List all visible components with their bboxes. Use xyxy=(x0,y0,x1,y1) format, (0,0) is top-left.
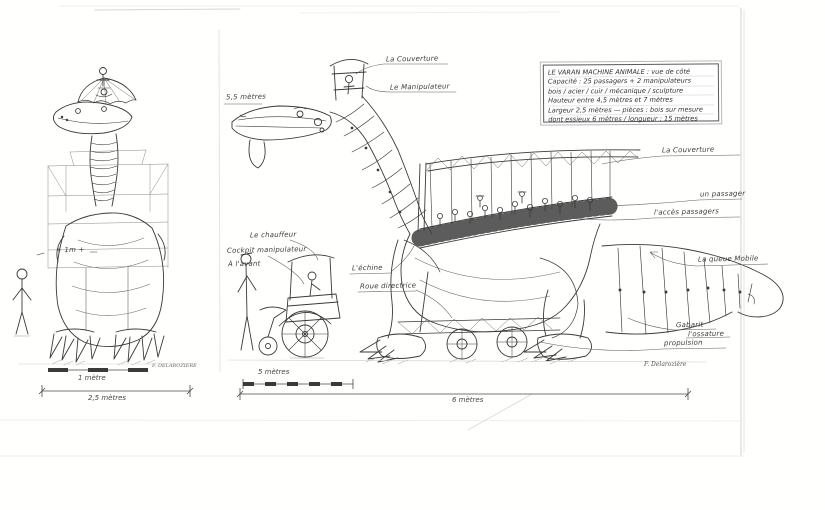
scanned-sketch-page: LE VARAN MACHINE ANIMALE : vue de côté C… xyxy=(0,0,825,510)
label-a-lavant: À l'avant xyxy=(228,260,261,269)
label-echine: L'échine xyxy=(352,264,383,273)
label-acces-passagers: l'accès passagers xyxy=(654,207,719,216)
label-echelle-humaine: + 1m + xyxy=(56,246,85,255)
label-queue-mobile: La queue Mobile xyxy=(698,254,759,263)
label-le-manipulateur: Le Manipulateur xyxy=(390,82,450,91)
label-ossature: l'ossature xyxy=(688,330,724,339)
title-block: LE VARAN MACHINE ANIMALE : vue de côté C… xyxy=(543,63,719,122)
gallery-sketch xyxy=(418,150,640,248)
dimension-front-scale: 1 mètre xyxy=(78,374,106,382)
label-un-passager: un passager xyxy=(700,190,745,199)
label-gabarit: Gabarit xyxy=(676,321,704,330)
label-cockpit-manipulateur: Cockpit manipulateur xyxy=(227,245,307,255)
legs-sketch xyxy=(360,240,592,364)
label-la-couverture-top: La Couverture xyxy=(386,54,438,63)
label-chauffeur: Le chauffeur xyxy=(250,231,297,240)
front-view-sketch xyxy=(18,68,196,366)
signature-front: F. DELAROZIERE xyxy=(152,363,197,369)
label-la-couverture-right: La Couverture xyxy=(662,145,714,154)
dimension-front-width: 2,5 mètres xyxy=(88,394,126,402)
dimension-side-length: 6 mètres xyxy=(452,396,483,404)
label-propulsion: propulsion xyxy=(664,339,703,348)
chassis-sketch xyxy=(398,317,560,363)
label-roue-directrice: Roue directrice xyxy=(360,281,416,290)
signature-side: F. Delarozière xyxy=(644,361,686,368)
head-sketch xyxy=(232,106,331,168)
title-block-line: dont essieux 6 mètres / longueur : 15 mè… xyxy=(548,114,714,124)
scale-figure-front xyxy=(13,252,97,336)
dimension-side-scale: 5 mètres xyxy=(258,368,289,376)
front-dimensions xyxy=(39,368,193,397)
label-hauteur-tete: 5,5 mètres xyxy=(226,93,266,102)
